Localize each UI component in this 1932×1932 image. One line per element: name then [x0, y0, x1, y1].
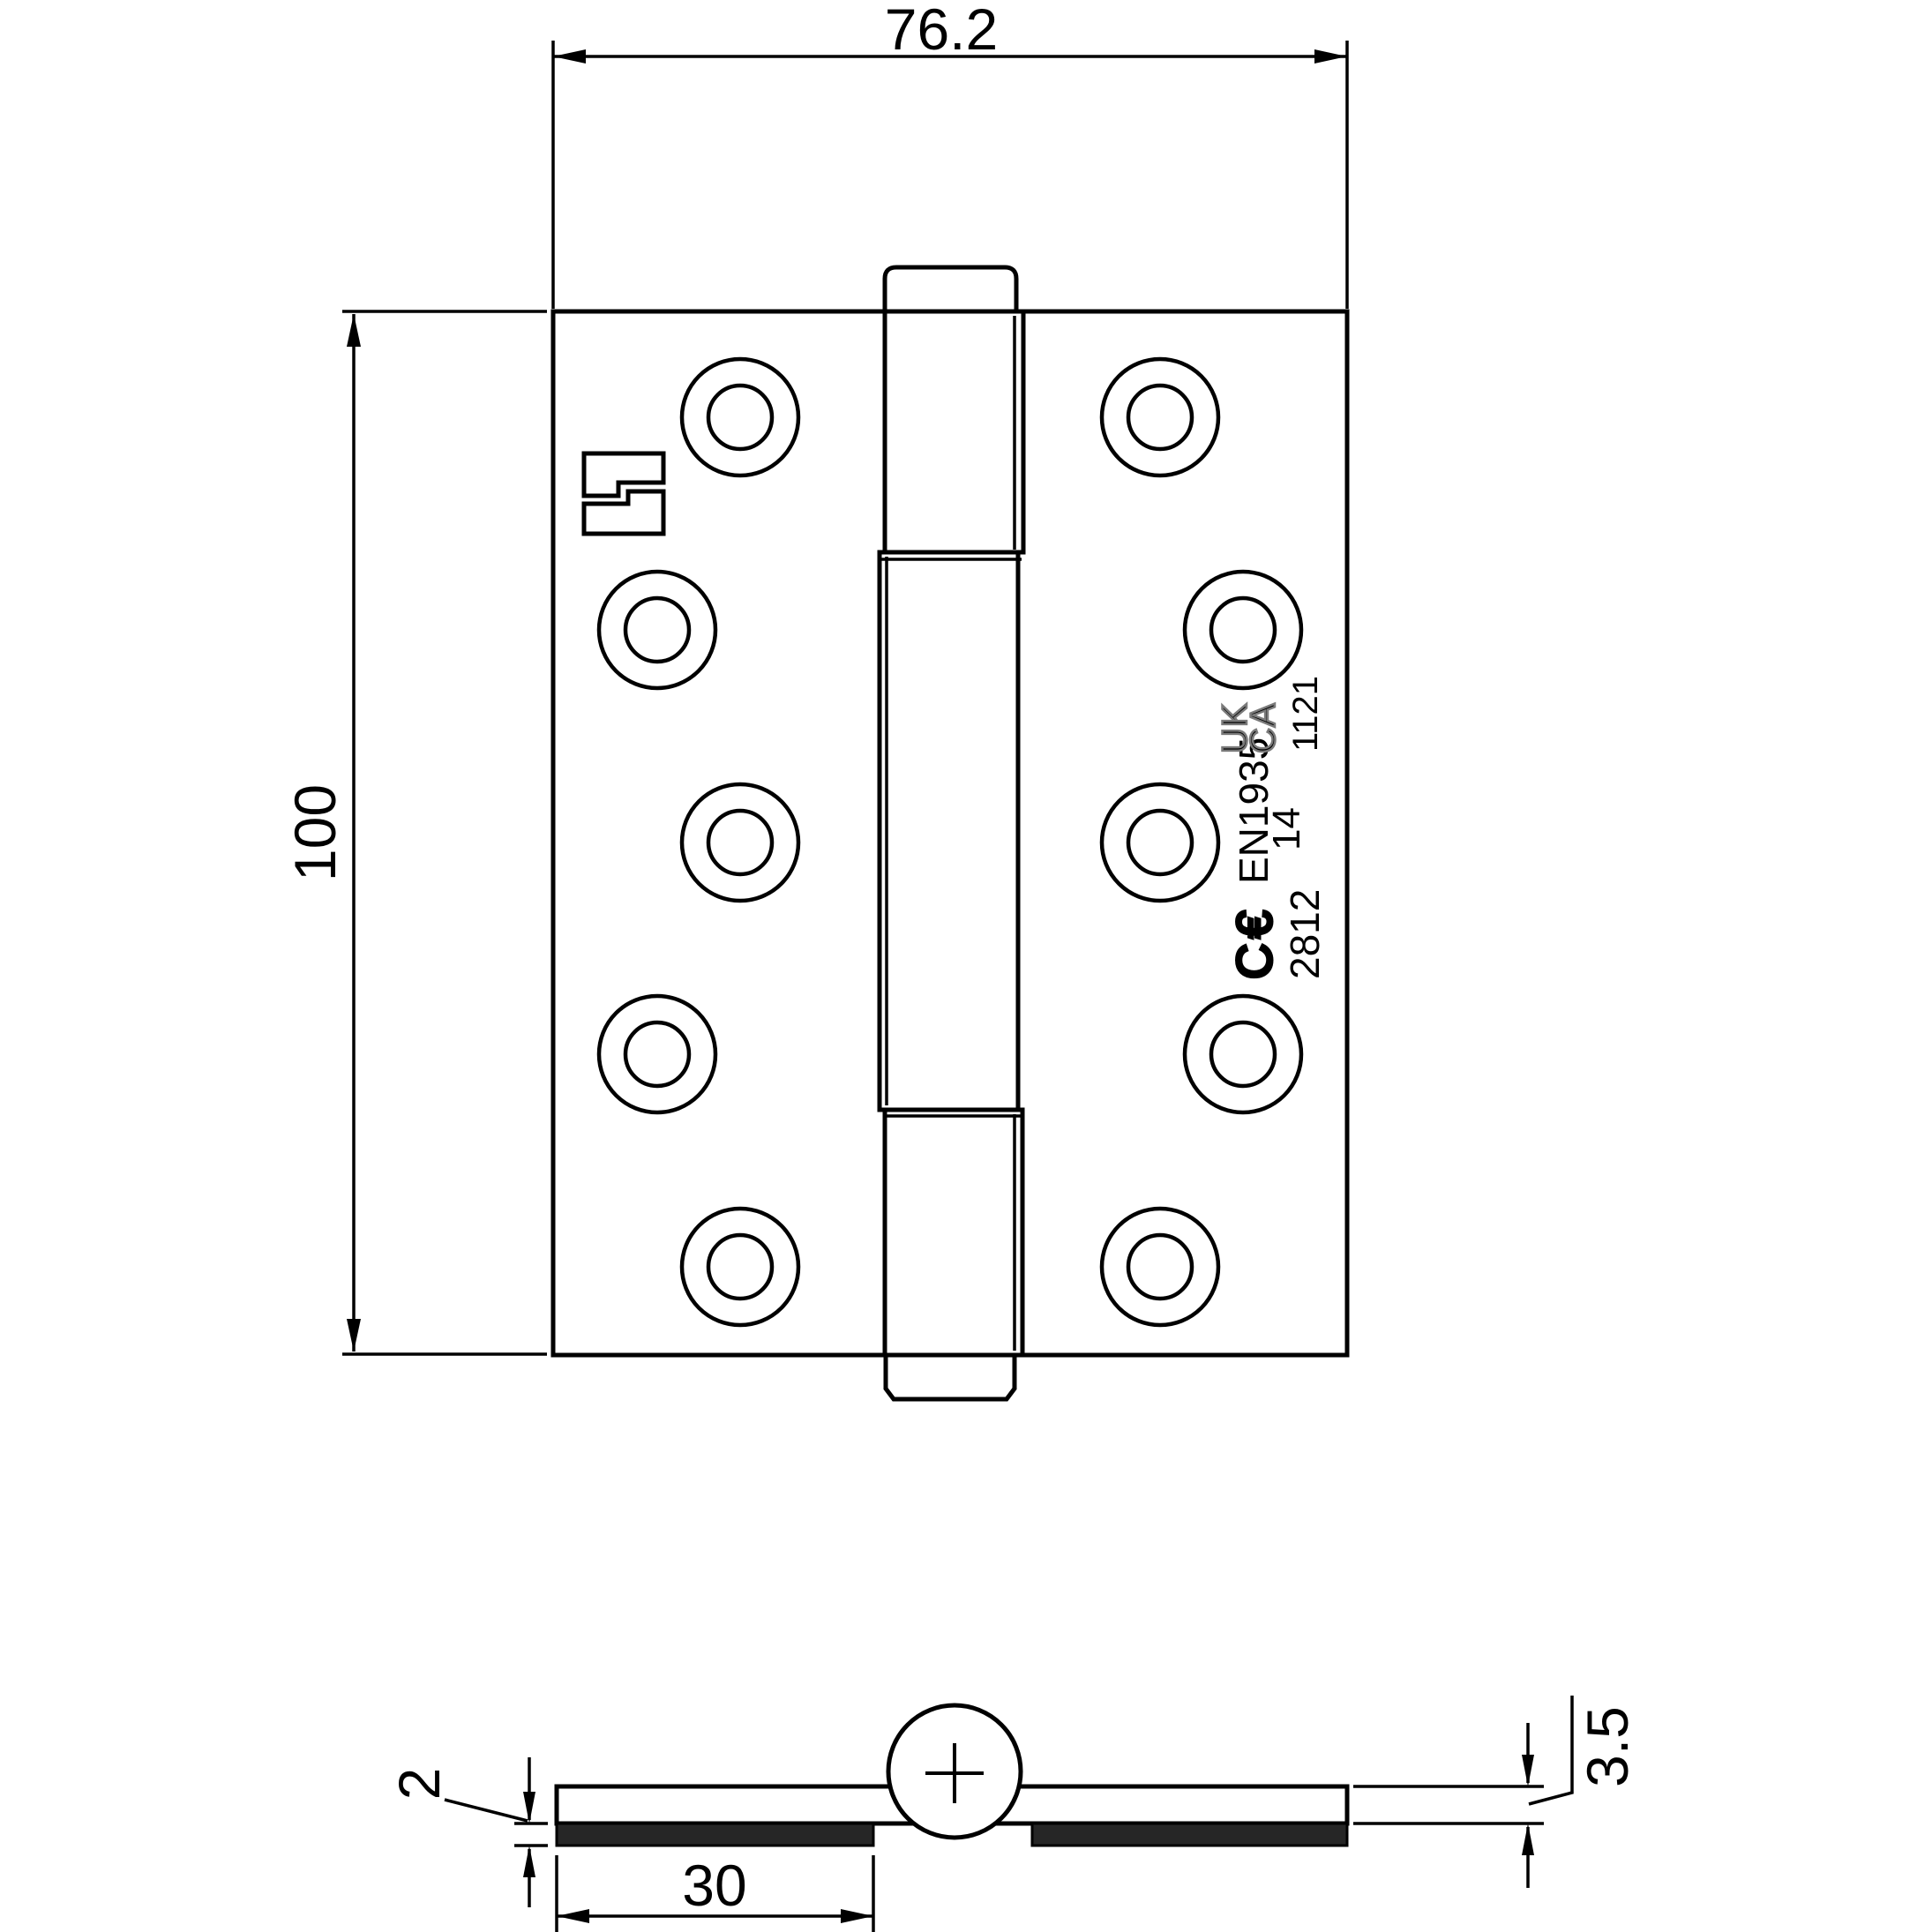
pin-tip-bottom	[886, 1355, 1015, 1399]
side-left-leaf	[557, 1786, 914, 1823]
dimension-leaf-thickness: 3.5	[1353, 1696, 1640, 1888]
intumescent-strip-left	[557, 1823, 873, 1846]
width-dimension-label: 76.2	[885, 0, 998, 62]
dimension-width: 76.2	[553, 0, 1347, 309]
pin-cap-top	[885, 267, 1016, 311]
screw-hole	[1102, 784, 1218, 901]
ukca-mark-icon: UK CA	[1216, 702, 1283, 753]
ce-body-number-label: 2812	[1282, 889, 1328, 979]
screw-hole	[1185, 996, 1301, 1112]
arrowhead-up-icon	[1522, 1823, 1534, 1855]
screw-hole	[682, 359, 798, 476]
knuckle-bottom	[885, 1110, 1022, 1355]
side-view: 2 30 3.5	[386, 1696, 1640, 1932]
dimension-height: 100	[282, 311, 547, 1354]
screw-hole	[1102, 359, 1218, 476]
arrowhead-right-icon	[841, 1909, 873, 1923]
screw-hole-bore	[708, 386, 772, 449]
knuckle-top	[885, 311, 1023, 552]
strip-width-label: 30	[682, 1853, 746, 1918]
height-dimension-label: 100	[282, 784, 348, 881]
screw-hole	[1185, 572, 1301, 688]
arrowhead-down-icon	[347, 1319, 361, 1352]
screw-hole	[682, 784, 798, 901]
hinge-technical-drawing: C€ EN1935 14 2812 UK CA 1121 76.2	[0, 0, 1932, 1932]
strip-thickness-label: 2	[386, 1768, 452, 1801]
arrowhead-up-icon	[347, 314, 361, 347]
arrowhead-left-icon	[553, 49, 586, 64]
ukca-mark-line2: CA	[1244, 702, 1283, 753]
screw-hole-bore	[1211, 1022, 1275, 1086]
leader-line	[445, 1800, 528, 1821]
dimension-strip-thickness: 2	[386, 1757, 548, 1907]
ce-mark-icon: C€	[1226, 905, 1282, 979]
arrowhead-right-icon	[1314, 49, 1347, 64]
screw-hole	[1102, 1209, 1218, 1325]
grade-label: 14	[1265, 807, 1308, 850]
screw-hole-bore	[708, 1235, 772, 1299]
screw-hole-bore	[1128, 811, 1192, 874]
arrowhead-down-icon	[1522, 1755, 1534, 1786]
drawing-canvas: C€ EN1935 14 2812 UK CA 1121 76.2	[0, 0, 1932, 1932]
dimension-strip-width: 30	[557, 1853, 873, 1932]
screw-hole-bore	[625, 1022, 689, 1086]
screw-hole	[599, 996, 715, 1112]
arrowhead-up-icon	[523, 1846, 535, 1877]
knuckle-middle	[880, 552, 1018, 1110]
hinge-knuckle	[880, 267, 1023, 1399]
ukca-body-number-label: 1121	[1286, 676, 1325, 752]
intumescent-strip-right	[1032, 1823, 1347, 1846]
screw-hole-bore	[1128, 1235, 1192, 1299]
front-view: C€ EN1935 14 2812 UK CA 1121 76.2	[282, 0, 1347, 1399]
arrowhead-left-icon	[557, 1909, 589, 1923]
leaf-thickness-label: 3.5	[1575, 1706, 1640, 1787]
screw-hole	[682, 1209, 798, 1325]
screw-hole-bore	[625, 598, 689, 662]
side-right-leaf	[995, 1786, 1347, 1823]
screw-hole-bore	[1128, 386, 1192, 449]
screw-hole	[599, 572, 715, 688]
screw-hole-bore	[708, 811, 772, 874]
screw-hole-bore	[1211, 598, 1275, 662]
